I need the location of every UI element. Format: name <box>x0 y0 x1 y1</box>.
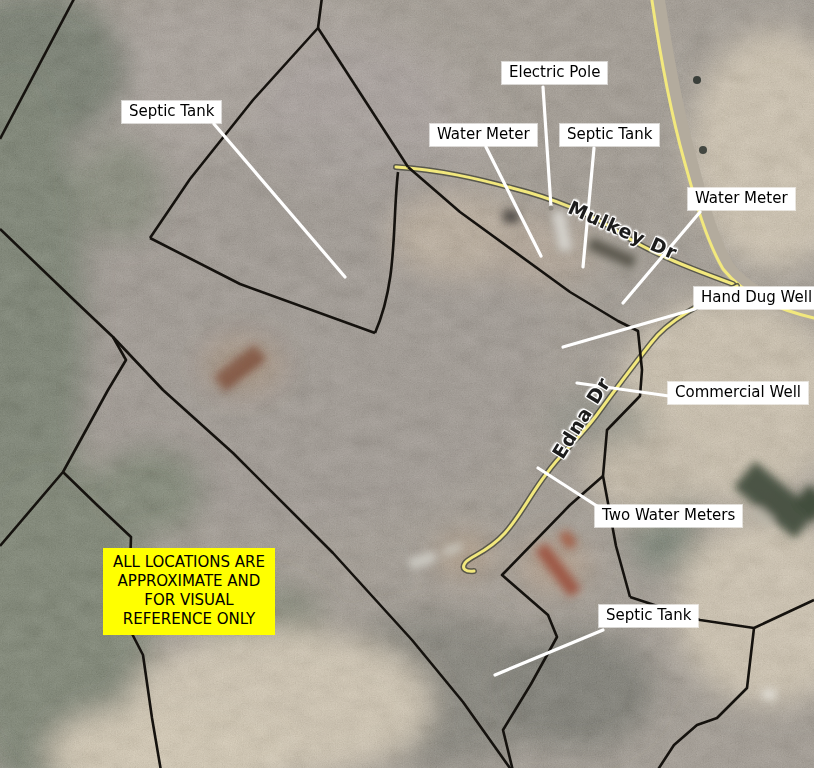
callout-septic-tank-n: Septic Tank <box>560 124 659 146</box>
callout-septic-tank-s: Septic Tank <box>599 605 698 627</box>
callout-electric-pole: Electric Pole <box>502 62 607 84</box>
vehicle <box>699 146 707 154</box>
disclaimer-line: FOR VISUAL <box>105 591 273 610</box>
callout-septic-tank-nw: Septic Tank <box>122 101 221 123</box>
callout-water-meter-e: Water Meter <box>688 188 795 210</box>
callout-hand-dug-well: Hand Dug Well <box>694 287 814 309</box>
disclaimer-box: ALL LOCATIONS ARE APPROXIMATE AND FOR VI… <box>103 548 275 635</box>
disclaimer-line: REFERENCE ONLY <box>105 610 273 629</box>
electric-pole-point <box>549 206 554 211</box>
aerial-map: Septic Tank Electric Pole Water Meter Se… <box>0 0 814 768</box>
vehicle <box>693 76 701 84</box>
disclaimer-line: ALL LOCATIONS ARE <box>105 553 273 572</box>
callout-two-water-meters: Two Water Meters <box>595 505 742 527</box>
disclaimer-line: APPROXIMATE AND <box>105 572 273 591</box>
callout-water-meter-w: Water Meter <box>430 124 537 146</box>
callout-commercial-well: Commercial Well <box>668 382 808 404</box>
